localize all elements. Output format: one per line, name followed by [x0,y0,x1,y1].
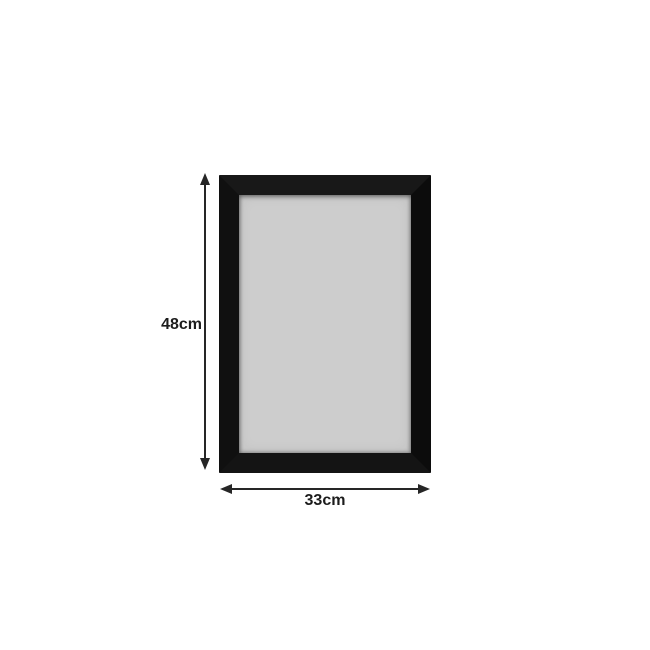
height-dimension-line [204,182,206,461]
width-dimension-line [229,488,421,490]
frame-surface [239,195,411,453]
picture-frame [219,175,431,473]
arrowhead-right-icon [418,484,430,494]
height-dimension-label: 48cm [110,316,202,334]
product-dimension-image: 48cm 33cm [0,0,650,650]
width-dimension-label: 33cm [265,492,385,510]
arrowhead-down-icon [200,458,210,470]
page-body: { "page": { "background_color": "#ffffff… [0,0,650,650]
